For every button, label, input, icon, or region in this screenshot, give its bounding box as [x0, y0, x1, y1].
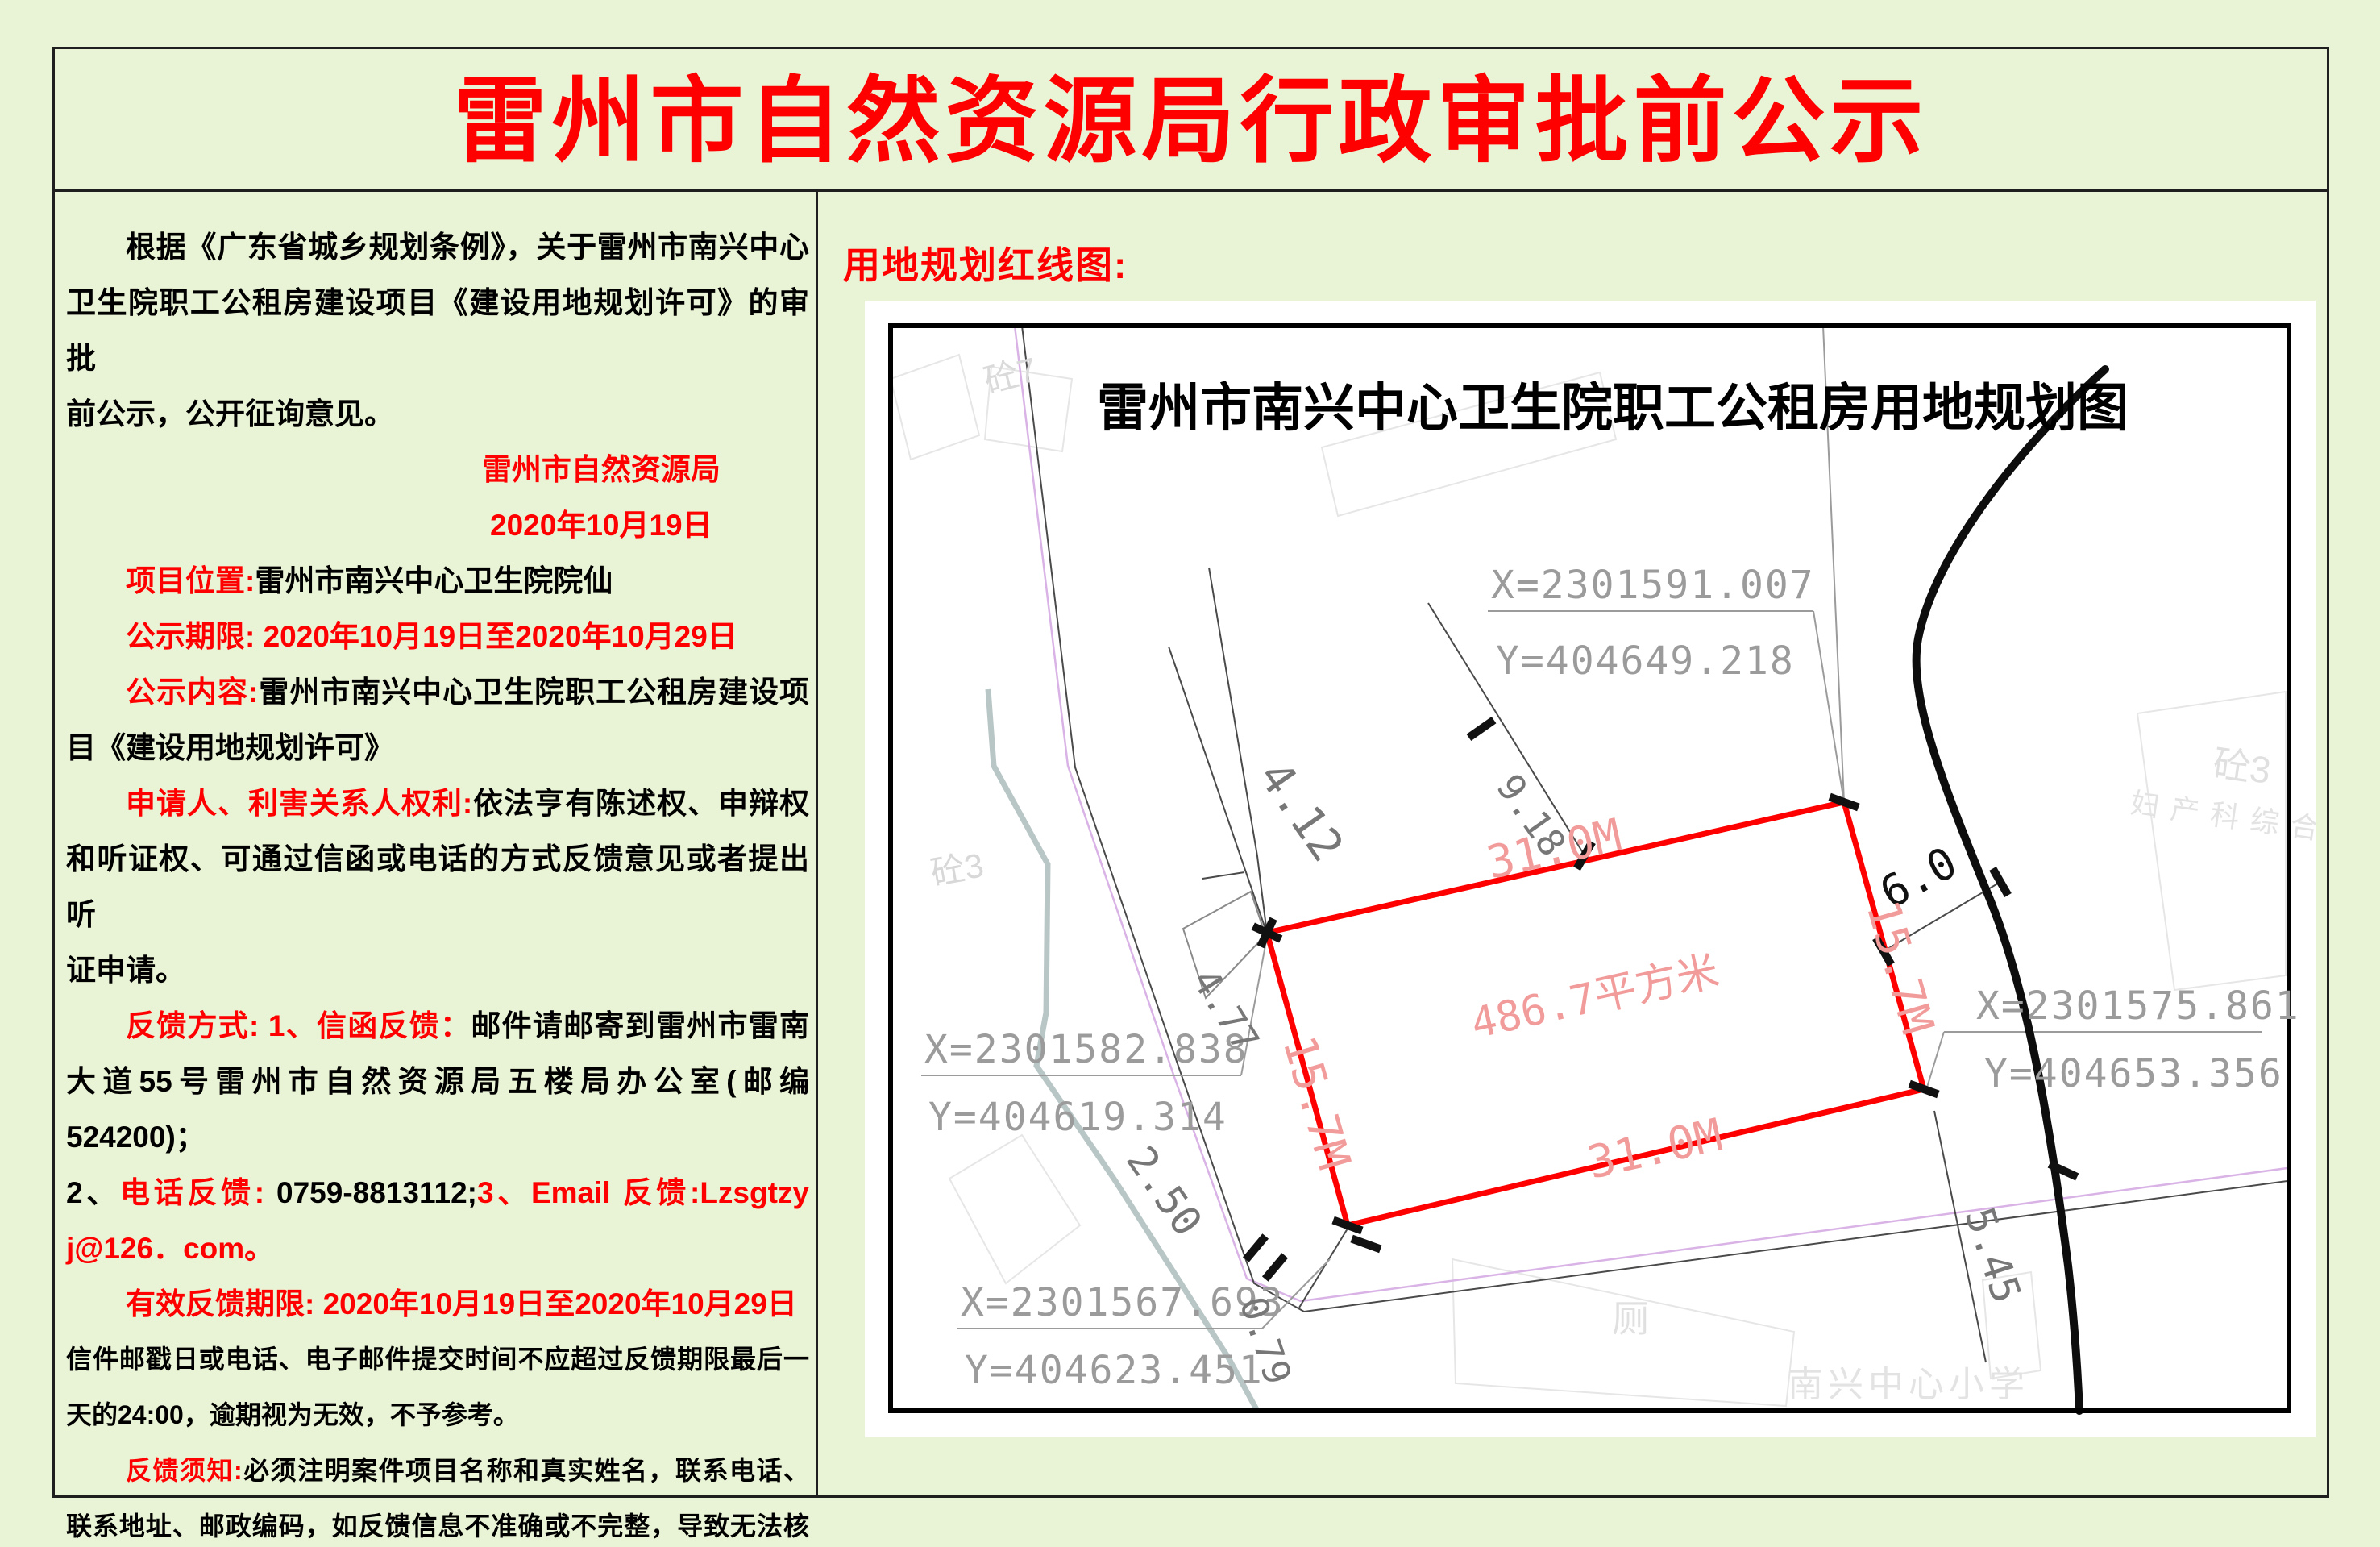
notice-text: 0759-8813112;: [276, 1176, 477, 1209]
notice-text: 必须注明案件项目名称和真实姓名，联系电话、: [243, 1456, 809, 1485]
notice-line: 天的24:00，逾期视为无效，不予参考。: [66, 1387, 809, 1443]
notice-line: j@126．com。: [66, 1221, 809, 1276]
planning-map-sheet: 雷州市南兴中心卫生院职工公租房用地规划图 X=2301591.007 Y=404…: [865, 301, 2316, 1437]
coord-west-x: X=2301582.838: [924, 1027, 1248, 1072]
notice-text: 雷州市南兴中心卫生院院仙: [255, 564, 613, 597]
notice-text-red: 公示内容:: [126, 676, 258, 709]
map-paper: [865, 301, 2316, 1437]
map-title: 雷州市南兴中心卫生院职工公租房用地规划图: [1097, 379, 2129, 437]
feature-toilet: 厕: [1612, 1298, 1649, 1340]
notice-text: 根据《广东省城乡规划条例》，关于雷州市南兴中心: [126, 231, 809, 264]
notice-text-red: 2020年10月19日: [490, 509, 712, 542]
notice-text-red: 雷州市自然资源局: [482, 453, 721, 486]
notice-text: 信件邮戳日或电话、电子邮件提交时间不应超过反馈期限最后一: [66, 1345, 809, 1374]
notice-text: 目《建设用地规划许可》: [66, 731, 394, 764]
coord-east-y: Y=404653.356: [1984, 1051, 2283, 1096]
notice-line: 2、电话反馈: 0759-8813112;3、Email 反馈:Lzsgtzy: [66, 1165, 809, 1221]
coord-north-x: X=2301591.007: [1491, 563, 1815, 608]
coord-east-x: X=2301575.861: [1976, 984, 2300, 1029]
notice-text: 邮件请邮寄到雷州市雷南: [471, 1009, 809, 1042]
notice-text: 前公示，公开征询意见。: [66, 397, 394, 430]
notice-text: 大道55号雷州市自然资源局五楼局办公室(邮编524200)；: [66, 1065, 809, 1154]
map-section-heading: 用地规划红线图:: [843, 236, 1128, 289]
notice-line: 反馈须知:必须注明案件项目名称和真实姓名，联系电话、: [66, 1443, 809, 1499]
page-title: 雷州市自然资源局行政审批前公示: [55, 49, 2327, 189]
notice-text-red: 电话反馈:: [120, 1176, 276, 1209]
notice-text-red: 反馈方式: 1、信函反馈：: [126, 1009, 471, 1042]
notice-line: 公示内容:雷州市南兴中心卫生院职工公租房建设项: [66, 664, 809, 720]
notice-line: 前公示，公开征询意见。: [66, 386, 809, 442]
notice-line: 证申请。: [66, 942, 809, 998]
notice-line: 雷州市自然资源局: [66, 442, 809, 497]
notice-line: 卫生院职工公租房建设项目《建设用地规划许可》的审批: [66, 275, 809, 386]
notice-page: 雷州市自然资源局行政审批前公示 根据《广东省城乡规划条例》，关于雷州市南兴中心卫…: [0, 0, 2380, 1547]
notice-text-panel: 根据《广东省城乡规划条例》，关于雷州市南兴中心卫生院职工公租房建设项目《建设用地…: [55, 192, 818, 1495]
notice-line: 有效反馈期限: 2020年10月19日至2020年10月29日: [66, 1276, 809, 1332]
feature-school: 南兴中心小学: [1788, 1365, 2029, 1404]
notice-text-red: j@126．com。: [66, 1232, 274, 1265]
notice-line: 根据《广东省城乡规划条例》，关于雷州市南兴中心: [66, 219, 809, 275]
notice-line: 2020年10月19日: [66, 497, 809, 553]
notice-text-red: 反馈须知:: [126, 1456, 243, 1485]
notice-line: 信件邮戳日或电话、电子邮件提交时间不应超过反馈期限最后一: [66, 1332, 809, 1387]
title-bar: 雷州市自然资源局行政审批前公示: [55, 49, 2327, 192]
notice-text: 和听证权、可通过信函或电话的方式反馈意见或者提出听: [66, 842, 809, 931]
notice-line: 公示期限: 2020年10月19日至2020年10月29日: [66, 609, 809, 664]
notice-line: 反馈方式: 1、信函反馈：邮件请邮寄到雷州市雷南: [66, 998, 809, 1054]
notice-text: 雷州市南兴中心卫生院职工公租房建设项: [258, 676, 809, 709]
notice-text: 依法亨有陈述权、申辩权: [472, 787, 809, 820]
notice-line: 项目位置:雷州市南兴中心卫生院院仙: [66, 553, 809, 609]
notice-line: 大道55号雷州市自然资源局五楼局办公室(邮编524200)；: [66, 1054, 809, 1165]
notice-text-red: 3、Email 反馈:Lzsgtzy: [477, 1176, 809, 1209]
notice-text: 卫生院职工公租房建设项目《建设用地规划许可》的审批: [66, 286, 809, 375]
notice-text-red: 有效反馈期限: 2020年10月19日至2020年10月29日: [126, 1287, 797, 1320]
coord-west-y: Y=404619.314: [928, 1095, 1227, 1140]
notice-line: 目《建设用地规划许可》: [66, 720, 809, 776]
coord-south-y: Y=404623.451: [965, 1348, 1264, 1393]
feature-tong3-right: 砼3: [2211, 742, 2274, 791]
notice-body: 根据《广东省城乡规划条例》，关于雷州市南兴中心卫生院职工公租房建设项目《建设用地…: [55, 192, 816, 1547]
notice-text-red: 公示期限: 2020年10月19日至2020年10月29日: [126, 620, 737, 653]
notice-text: 天的24:00，逾期视为无效，不予参考。: [66, 1400, 519, 1429]
notice-line: 和听证权、可通过信函或电话的方式反馈意见或者提出听: [66, 831, 809, 942]
coord-north-y: Y=404649.218: [1496, 638, 1795, 684]
notice-text-red: 项目位置:: [126, 564, 255, 597]
notice-text: 联系地址、邮政编码，如反馈信息不准确或不完整，导致无法核: [66, 1512, 809, 1541]
notice-line: 申请人、利害关系人权利:依法亨有陈述权、申辩权: [66, 776, 809, 831]
notice-text-red: 申请人、利害关系人权利:: [126, 787, 472, 820]
planning-map: 雷州市南兴中心卫生院职工公租房用地规划图 X=2301591.007 Y=404…: [865, 301, 2316, 1437]
notice-text: 2、: [66, 1176, 120, 1209]
notice-line: 联系地址、邮政编码，如反馈信息不准确或不完整，导致无法核: [66, 1499, 809, 1547]
notice-text: 证申请。: [66, 954, 185, 987]
